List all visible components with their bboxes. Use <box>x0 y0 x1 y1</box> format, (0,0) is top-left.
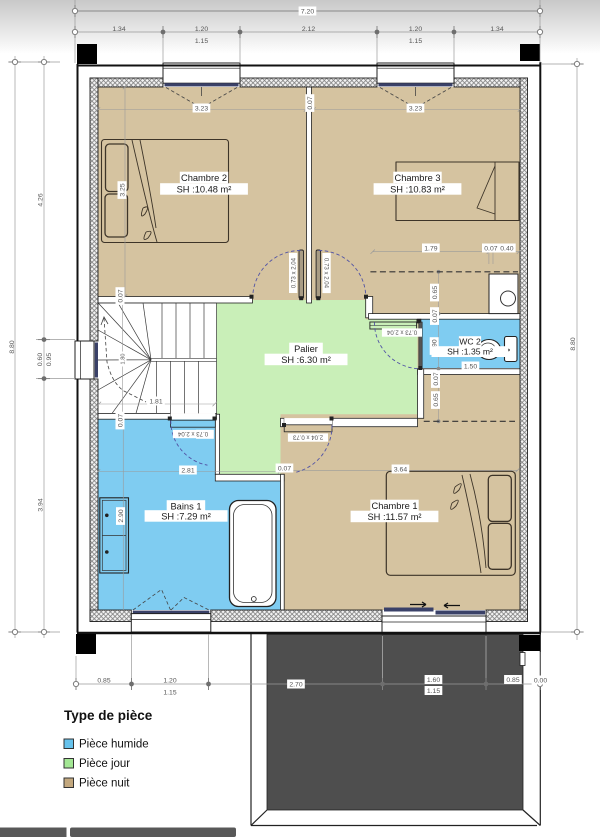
svg-text:SH :10.83 m²: SH :10.83 m² <box>390 184 445 194</box>
svg-text:SH :1.35 m²: SH :1.35 m² <box>447 347 493 357</box>
svg-text:Pièce jour: Pièce jour <box>79 758 130 770</box>
svg-text:0.07: 0.07 <box>432 309 439 322</box>
svg-text:0.07: 0.07 <box>484 245 497 252</box>
svg-text:3.23: 3.23 <box>409 105 422 112</box>
svg-text:1.20: 1.20 <box>195 26 208 33</box>
svg-text:0.60: 0.60 <box>37 353 44 366</box>
svg-text:8.80: 8.80 <box>570 337 577 350</box>
svg-text:Type de pièce: Type de pièce <box>64 708 153 723</box>
svg-text:1.34: 1.34 <box>490 26 503 33</box>
svg-text:0.00: 0.00 <box>534 677 547 684</box>
svg-text:3.64: 3.64 <box>394 466 407 473</box>
svg-text:Pièce nuit: Pièce nuit <box>79 778 130 790</box>
svg-text:0.07: 0.07 <box>278 465 291 472</box>
svg-text:3.23: 3.23 <box>195 105 208 112</box>
svg-text:8.80: 8.80 <box>9 340 16 353</box>
svg-text:1.34: 1.34 <box>112 26 125 33</box>
svg-text:Chambre 1: Chambre 1 <box>372 501 418 511</box>
svg-text:0.85: 0.85 <box>97 677 110 684</box>
svg-text:1.20: 1.20 <box>163 677 176 684</box>
svg-text:0.07: 0.07 <box>117 414 124 427</box>
svg-text:1.20: 1.20 <box>409 26 422 33</box>
svg-text:3.94: 3.94 <box>37 498 44 511</box>
svg-text:0.95: 0.95 <box>46 353 53 366</box>
svg-text:SH :7.29 m²: SH :7.29 m² <box>161 511 211 521</box>
svg-text:Pièce humide: Pièce humide <box>79 739 149 751</box>
svg-text:Chambre 3: Chambre 3 <box>395 173 441 183</box>
svg-text:1.79: 1.79 <box>424 245 437 252</box>
svg-text:2.12: 2.12 <box>302 26 315 33</box>
svg-text:0.07: 0.07 <box>433 372 440 385</box>
svg-text:2.90: 2.90 <box>118 509 125 522</box>
svg-text:0.65: 0.65 <box>433 393 440 406</box>
svg-text:Chambre 2: Chambre 2 <box>181 173 227 183</box>
svg-text:1.15: 1.15 <box>427 688 440 695</box>
svg-text:WC 2: WC 2 <box>459 337 481 347</box>
svg-text:0.40: 0.40 <box>500 245 513 252</box>
svg-text:0.73 x 2.04: 0.73 x 2.04 <box>322 258 329 289</box>
svg-text:7.20: 7.20 <box>301 8 314 15</box>
svg-text:SH :6.30 m²: SH :6.30 m² <box>281 355 331 365</box>
svg-text:SH :10.48 m²: SH :10.48 m² <box>177 184 232 194</box>
svg-text:2.81: 2.81 <box>181 467 194 474</box>
svg-text:0.07: 0.07 <box>117 289 124 302</box>
svg-text:1.15: 1.15 <box>163 689 176 696</box>
svg-text:4.26: 4.26 <box>37 193 44 206</box>
svg-text:0.65: 0.65 <box>432 286 439 299</box>
svg-text:2.04 x 0.73: 2.04 x 0.73 <box>292 433 323 440</box>
svg-text:1.80: 1.80 <box>121 354 127 365</box>
svg-text:2.70: 2.70 <box>289 681 302 688</box>
svg-text:1.15: 1.15 <box>195 38 208 45</box>
svg-text:1.50: 1.50 <box>464 363 477 370</box>
svg-text:1.81: 1.81 <box>149 398 162 405</box>
svg-text:0.07: 0.07 <box>307 96 314 109</box>
svg-text:3.25: 3.25 <box>119 183 126 196</box>
svg-text:0.73 x 2.04: 0.73 x 2.04 <box>290 257 297 288</box>
svg-text:SH :11.57 m²: SH :11.57 m² <box>367 512 421 522</box>
svg-text:Palier: Palier <box>294 344 318 354</box>
svg-text:1.60: 1.60 <box>427 677 440 684</box>
svg-text:Bains 1: Bains 1 <box>170 501 201 511</box>
svg-text:0.85: 0.85 <box>506 677 519 684</box>
svg-text:0.73 x 2.04: 0.73 x 2.04 <box>177 430 208 437</box>
svg-text:1.15: 1.15 <box>409 38 422 45</box>
svg-text:0.73 x 2.04: 0.73 x 2.04 <box>386 328 417 335</box>
